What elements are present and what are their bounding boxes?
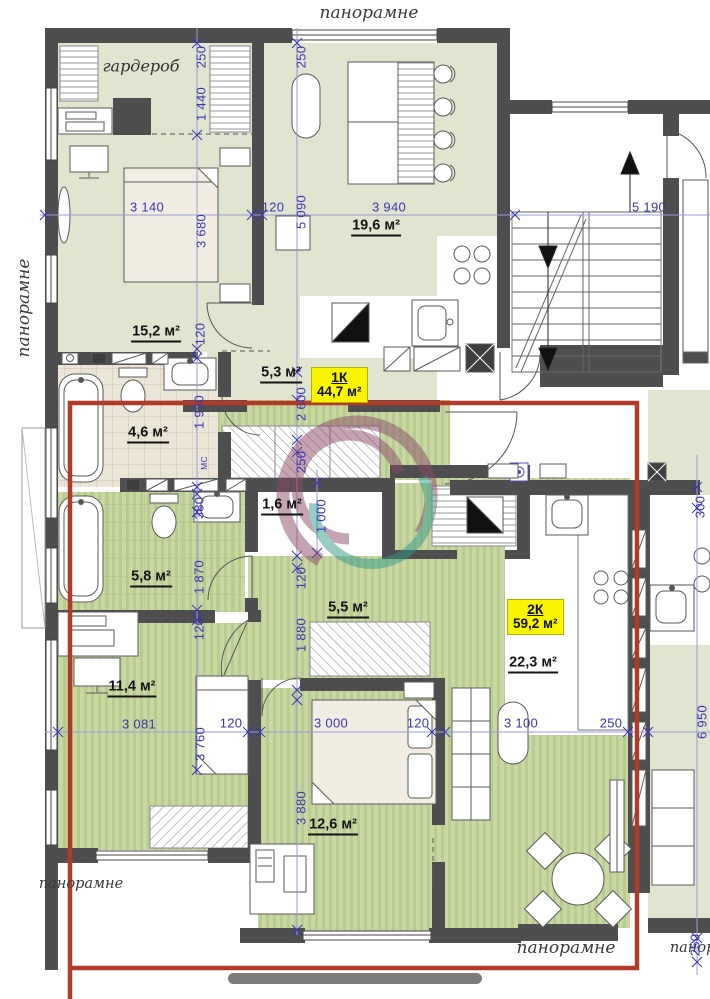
room-area-11-4: 11,4 м²: [107, 679, 156, 698]
room-label-wardrobe: гардероб: [102, 57, 179, 76]
dim-3100: 3 100: [504, 716, 538, 731]
door-arc: [667, 130, 706, 178]
dim-1000: 1 000: [314, 499, 329, 533]
sink: [412, 300, 458, 346]
room-area-5-5: 5,5 м²: [327, 600, 369, 619]
room-area-12-6: 12,6 м²: [308, 817, 358, 836]
dim-5190: 5 190: [632, 200, 666, 215]
label-panoramic-bottom-right: панорамне: [517, 938, 616, 958]
desk: [58, 108, 112, 134]
window: [46, 255, 57, 303]
window: [292, 30, 437, 40]
window: [96, 851, 208, 860]
room-area-4-6: 4,6 м²: [127, 425, 169, 444]
bedroom11-wardrobe-hatch: [150, 806, 248, 848]
window: [303, 931, 431, 940]
dim-120: 120: [262, 200, 285, 215]
apartment-2k-name: 2К: [513, 602, 558, 617]
bottom-bar: [228, 973, 482, 984]
dim-1930: 1 930: [192, 395, 207, 429]
neighbor-sink: [650, 585, 694, 631]
room-area-15-2: 15,2 м²: [131, 324, 181, 343]
elevator: [683, 180, 708, 363]
toilet: [150, 494, 178, 538]
label-panoramic-bottom-left: панорамне: [39, 876, 123, 892]
dim-120: 120: [407, 716, 430, 731]
apartment-tag-1k: 1К 44,7 м²: [311, 367, 368, 403]
dim-120: 120: [192, 618, 207, 641]
bathtub: [59, 374, 103, 482]
dim-2600: 2 600: [294, 387, 309, 421]
wardrobe-shelf-hatch: [210, 46, 250, 132]
dim-1440: 1 440: [194, 87, 209, 121]
radiator: [292, 74, 320, 138]
dim-1880: 1 880: [294, 618, 309, 652]
window: [46, 88, 57, 160]
apartment-1k-area: 44,7 м²: [317, 385, 362, 400]
room-area-5-8: 5,8 м²: [130, 569, 172, 588]
sink: [164, 358, 216, 390]
dim-1870: 1 870: [192, 560, 207, 594]
apartment-1k-name: 1К: [317, 370, 362, 385]
dim-250: 250: [600, 716, 623, 731]
apartment-tag-2k: 2К 59,2 м²: [507, 599, 564, 635]
label-panoramic-left: панорамне: [14, 259, 34, 358]
sink: [546, 495, 588, 536]
dim-120: 120: [220, 716, 243, 731]
room-area-22-3: 22,3 м²: [508, 655, 558, 674]
dim-5090: 5 090: [294, 195, 309, 229]
room-area-5-3: 5,3 м²: [260, 365, 302, 384]
dim-250: 250: [294, 451, 309, 474]
nightstand: [404, 682, 434, 698]
dim-3140: 3 140: [130, 200, 164, 215]
dim-300: 300: [693, 496, 708, 519]
dim-380: 380: [192, 497, 207, 520]
fridge: [332, 303, 369, 342]
apartment-2k-area: 59,2 м²: [513, 617, 558, 632]
wardrobe-shelf-hatch: [60, 46, 98, 101]
dim-3940: 3 940: [372, 200, 406, 215]
floor-plan: панорамне панорамне панорамне панорамне …: [0, 0, 710, 999]
door-arc: [500, 355, 540, 400]
dim-6950: 6 950: [695, 705, 710, 739]
window: [46, 640, 57, 750]
computer-desk: [250, 844, 314, 914]
balcony-strip: [22, 428, 45, 628]
dim-250: 250: [194, 46, 209, 69]
label-utility: МС: [199, 456, 209, 470]
balcony-door: [610, 780, 624, 872]
dim-250: 250: [688, 934, 703, 957]
dim-120: 120: [294, 567, 309, 590]
dim-3680: 3 680: [194, 214, 209, 248]
wardrobe-grid: [452, 688, 490, 820]
window: [46, 428, 57, 518]
radiator: [498, 702, 528, 764]
window: [46, 548, 57, 603]
dim-250: 250: [294, 46, 309, 69]
room-area-19-6: 19,6 м²: [351, 218, 401, 237]
toilet: [119, 368, 147, 412]
dining-table: [398, 62, 434, 184]
dim-3880: 3 880: [294, 791, 309, 825]
window: [46, 790, 57, 845]
dim-3000: 3 000: [314, 716, 348, 731]
vent-squares: [62, 353, 168, 364]
floor-plan-drawing: [0, 0, 710, 999]
appliances: [384, 344, 494, 372]
dim-3760: 3 760: [193, 727, 208, 761]
bathtub: [59, 496, 103, 602]
window: [552, 102, 628, 112]
room-area-1-6: 1,6 м²: [261, 497, 303, 516]
sofa: [348, 62, 398, 184]
dim-3081: 3 081: [122, 717, 156, 732]
dim-120: 120: [193, 323, 208, 346]
neighbor-sofa: [652, 770, 694, 885]
hall-closet-hatch: [310, 622, 430, 676]
label-panoramic-top: панорамне: [320, 3, 419, 23]
